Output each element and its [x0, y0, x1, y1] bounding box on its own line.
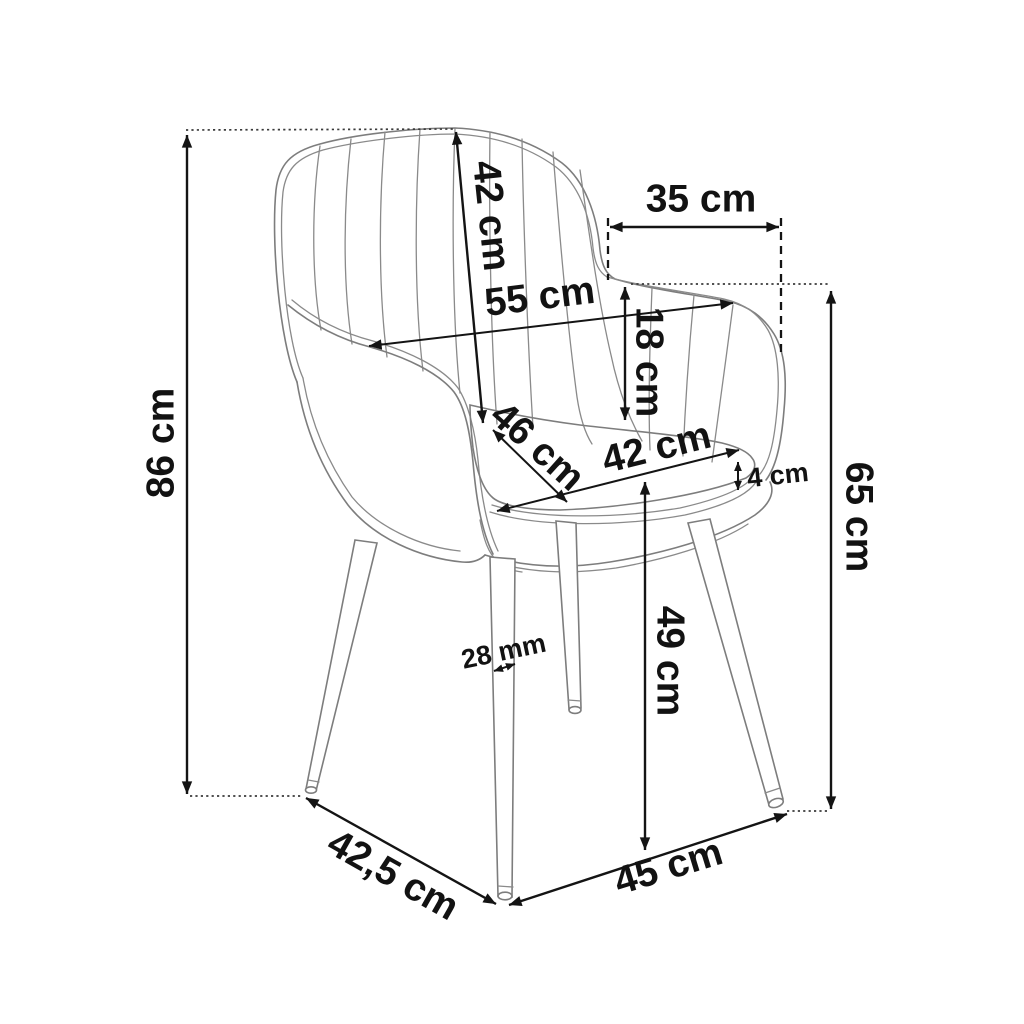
dim-backrest-width: 55 cm: [369, 269, 733, 346]
chair-drawing: [275, 128, 786, 900]
dim-label-overall-height: 86 cm: [139, 388, 182, 499]
dim-label-armrest-height: 65 cm: [838, 462, 881, 573]
chair-seat-piping-1: [492, 478, 752, 516]
chair-dimension-drawing: 86 cm 42 cm 55 cm 35 cm 18 cm 65 cm 46 c…: [0, 0, 1024, 1024]
dim-cushion-thickness: 4 cm: [738, 457, 810, 493]
dim-label-seat-height: 49 cm: [649, 606, 692, 717]
dim-overall-height: 86 cm: [139, 129, 456, 796]
chair-armrest-left-outer: [288, 305, 493, 554]
dim-seat-height: 49 cm: [645, 482, 692, 850]
dim-armrest-height: 65 cm: [787, 291, 881, 811]
dim-base-width: 45 cm: [509, 814, 787, 905]
dim-seat-depth: 46 cm: [482, 393, 593, 502]
chair-leg-front-left: [490, 557, 515, 897]
dim-label-armrest-top-width: 35 cm: [646, 177, 757, 220]
chair-seat-shell-rim: [485, 482, 772, 566]
chair-backrest-inner-edge: [282, 134, 607, 378]
chair-side-shell-left-inner: [303, 378, 460, 551]
chair-leg-back-left: [306, 540, 377, 791]
dim-label-backrest-height: 42 cm: [464, 159, 518, 273]
chair-side-shell-left: [297, 382, 485, 562]
dim-base-depth: 42,5 cm: [306, 798, 496, 929]
dimension-diagram: 86 cm 42 cm 55 cm 35 cm 18 cm 65 cm 46 c…: [0, 0, 1024, 1024]
dim-label-armrest-to-seat: 18 cm: [628, 307, 671, 418]
dim-label-seat-depth: 46 cm: [482, 393, 593, 499]
chair-leg-back-right: [556, 521, 581, 709]
chair-leg-front-right: [688, 519, 783, 805]
dim-label-cushion-thickness: 4 cm: [746, 457, 810, 493]
dim-label-backrest-width: 55 cm: [482, 269, 597, 325]
dim-label-base-width: 45 cm: [609, 830, 727, 903]
dim-backrest-height: 42 cm: [456, 132, 518, 423]
